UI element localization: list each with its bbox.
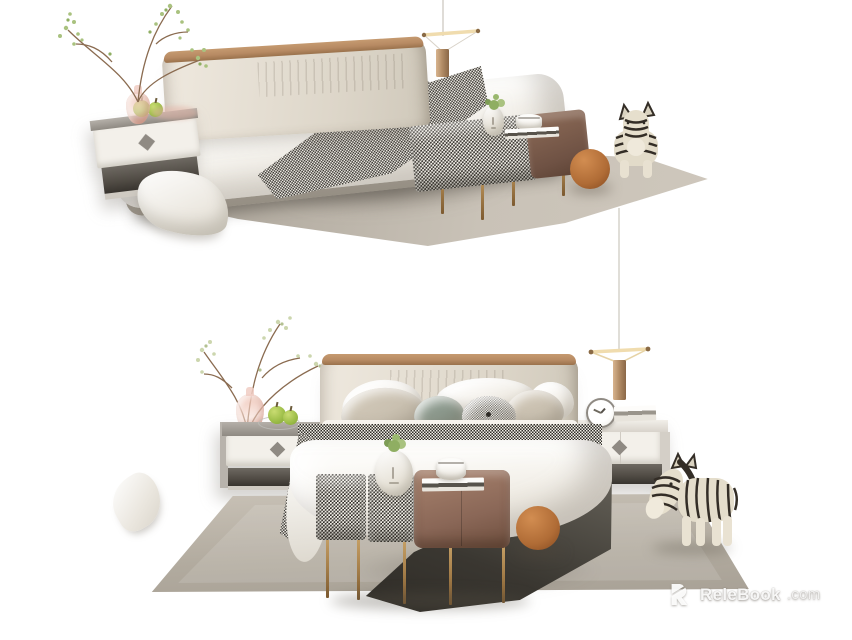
stool-leg	[326, 536, 329, 598]
vase-plant	[489, 100, 499, 110]
watermark-brand: ReleBook	[700, 585, 781, 605]
watermark-suffix: .com	[787, 586, 821, 603]
zebra-figurine	[610, 100, 662, 180]
plant-branches	[52, 0, 212, 135]
bench-shadow	[330, 592, 530, 610]
orange-ball-pouf	[516, 506, 560, 550]
pillow-button	[486, 412, 491, 417]
pendant-lamp	[414, 0, 484, 84]
vase-plant	[388, 440, 400, 452]
stool-houndstooth	[316, 474, 366, 540]
watermark: ReleBook.com	[668, 583, 821, 606]
face-vase	[375, 450, 413, 496]
zebra-figurine	[644, 450, 739, 550]
green-apple	[283, 410, 298, 425]
bedroom-render-canvas: ReleBook.com	[0, 0, 852, 640]
book-stack	[614, 405, 656, 421]
scene-bottom	[0, 208, 852, 640]
relebook-r-icon	[668, 583, 694, 606]
orange-ball-pouf	[570, 149, 610, 189]
stool-leg	[357, 538, 360, 600]
face-vase	[483, 106, 504, 136]
pendant-lamp	[584, 208, 656, 408]
round-box	[436, 458, 466, 480]
alarm-clock	[586, 398, 616, 428]
floor-feather	[102, 467, 171, 537]
